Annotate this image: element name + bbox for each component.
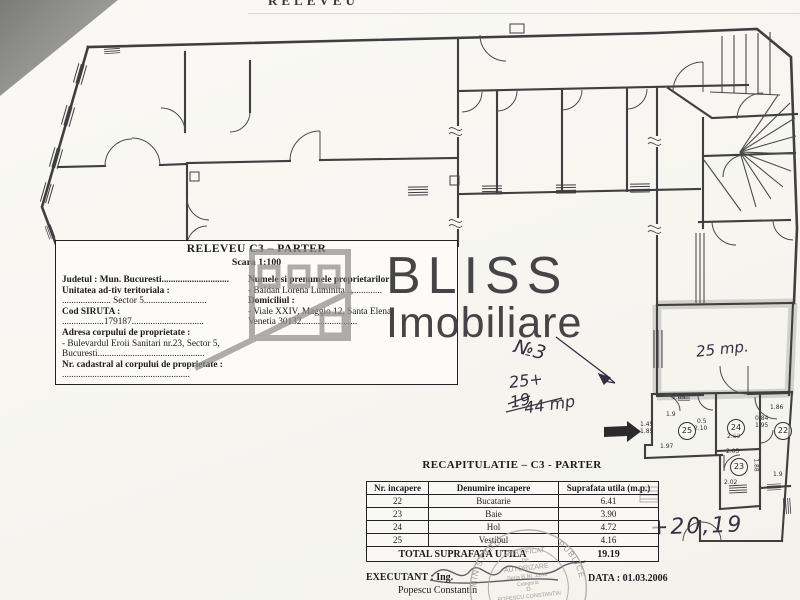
total-label: TOTAL SUPRAFATA UTILA xyxy=(367,547,559,562)
field-adresa-value2: Bucuresti...............................… xyxy=(62,349,248,360)
table-cell: 4.72 xyxy=(559,521,659,534)
recap-table: Nr. incapere Denumire incapere Suprafata… xyxy=(366,481,659,562)
table-cell: Baie xyxy=(429,508,559,521)
bliss-logo-text: BLISS xyxy=(386,250,568,302)
recap-header: Nr. incapere Denumire incapere Suprafata… xyxy=(367,482,659,495)
bliss-logo-subtext: Imobiliare xyxy=(386,302,582,345)
recap-total-row: TOTAL SUPRAFATA UTILA 19.19 xyxy=(367,547,659,562)
field-siruta-value: ..................179187................… xyxy=(62,317,248,328)
field-siruta-label: Cod SIRUTA : xyxy=(62,307,248,318)
field-cadastral-value: ........................................… xyxy=(62,370,248,381)
col-header-nr: Nr. incapere xyxy=(367,482,429,495)
table-cell: 23 xyxy=(367,508,429,521)
table-row: 25Vestibul4.16 xyxy=(367,534,659,547)
table-row: 24Hol4.72 xyxy=(367,521,659,534)
executant-name: Popescu Constantin xyxy=(398,585,477,596)
table-cell: Vestibul xyxy=(429,534,559,547)
scan-line-artifact xyxy=(248,13,800,14)
cut-off-page-title: RELEVEU xyxy=(268,0,568,6)
staircase xyxy=(704,32,796,211)
total-value: 19.19 xyxy=(559,547,659,562)
table-cell: 24 xyxy=(367,521,429,534)
col-header-suprafata: Suprafata utila (m.p.) xyxy=(559,482,659,495)
table-cell: 4.16 xyxy=(559,534,659,547)
field-unitate-value: ..................... Sector 5..........… xyxy=(62,296,248,307)
field-unitate-label: Unitatea ad-tiv teritoriala : xyxy=(62,286,248,297)
wall-break-marks xyxy=(449,126,662,235)
field-adresa-label: Adresa corpului de proprietate : xyxy=(62,328,248,339)
table-cell: Bucatarie xyxy=(429,495,559,508)
table-cell: 22 xyxy=(367,495,429,508)
info-box-left-column: Judetul : Mun. Bucuresti................… xyxy=(62,275,248,381)
table-cell: 6.41 xyxy=(559,495,659,508)
date-label: DATA : 01.03.2006 xyxy=(588,573,668,584)
table-row: 22Bucatarie6.41 xyxy=(367,495,659,508)
executant-label: EXECUTANT : Ing. xyxy=(366,572,453,583)
table-cell: 3.90 xyxy=(559,508,659,521)
field-adresa-value1: - Bulevardul Eroii Sanitari nr.23, Secto… xyxy=(62,339,248,350)
recap-body: 22Bucatarie6.4123Baie3.9024Hol4.7225Vest… xyxy=(367,495,659,547)
table-row: 23Baie3.90 xyxy=(367,508,659,521)
table-cell: 25 xyxy=(367,534,429,547)
field-judet: Judetul : Mun. Bucuresti................… xyxy=(62,275,248,286)
handwritten-grand-total: +20,19 xyxy=(650,512,744,540)
recap-title: RECAPITULATIE – C3 - PARTER xyxy=(366,459,658,471)
col-header-denumire: Denumire incapere xyxy=(429,482,559,495)
scanned-cadastral-document: { "document": { "top_cut_title": "RELEVE… xyxy=(0,0,800,600)
field-cadastral-label: Nr. cadastral al corpului de proprietate… xyxy=(62,360,248,371)
table-cell: Hol xyxy=(429,521,559,534)
